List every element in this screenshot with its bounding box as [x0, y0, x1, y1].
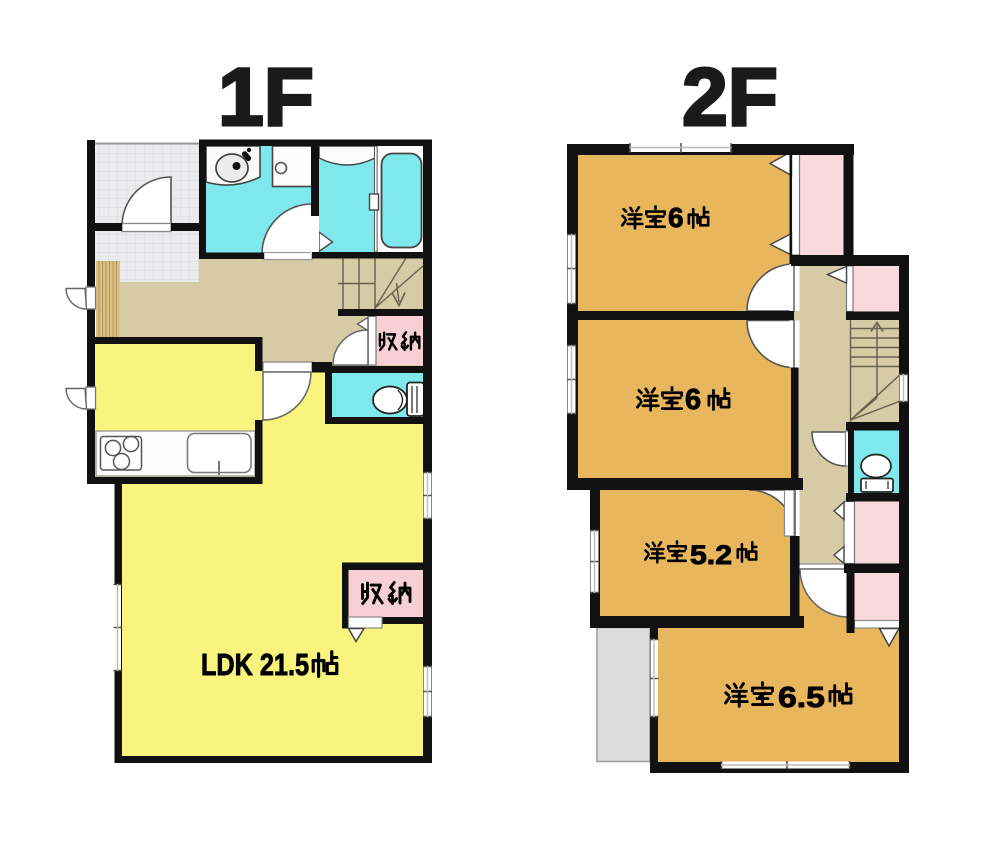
svg-text:6: 6	[668, 202, 684, 233]
svg-text:1F: 1F	[218, 52, 314, 143]
svg-text:LDK 21.5: LDK 21.5	[201, 647, 309, 682]
svg-text:5.2: 5.2	[690, 540, 732, 570]
svg-text:6.5: 6.5	[778, 682, 825, 714]
svg-text:6: 6	[685, 384, 701, 416]
svg-text:2F: 2F	[682, 52, 778, 143]
